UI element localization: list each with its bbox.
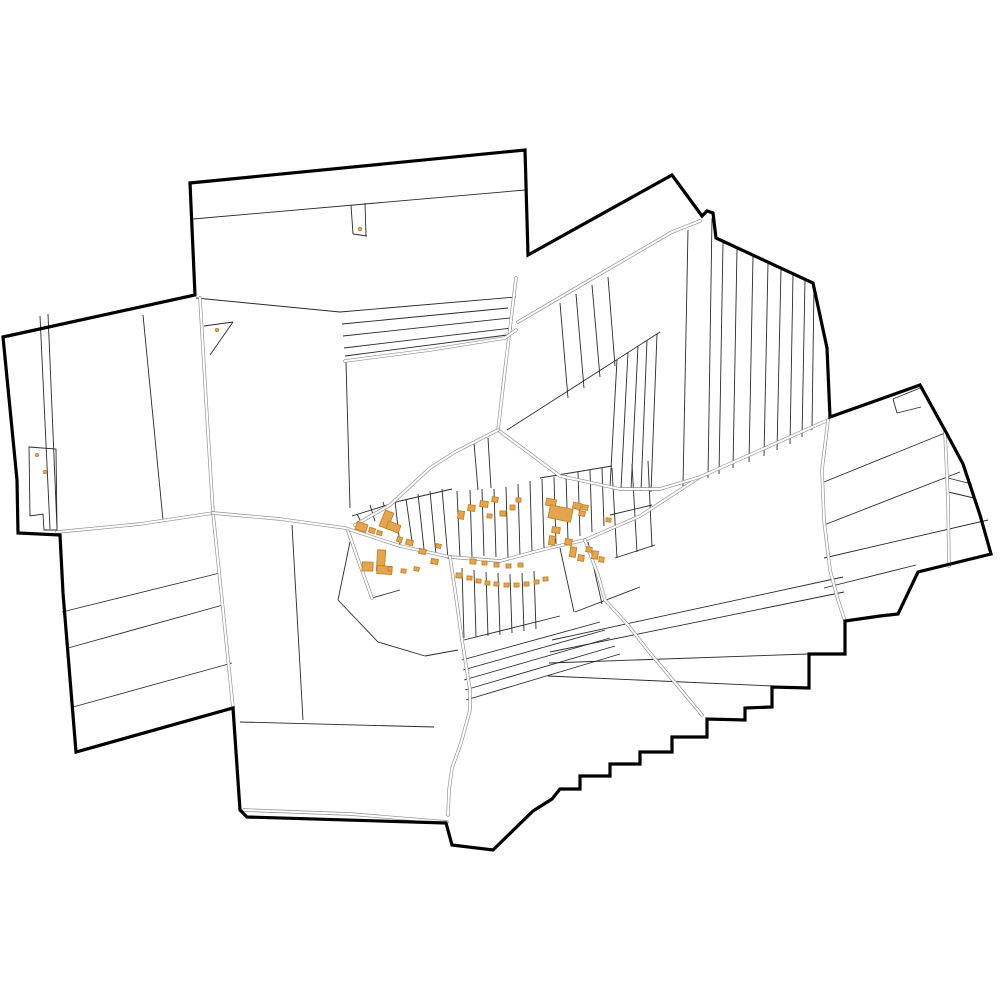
parcel-line [462,568,464,638]
road [448,557,470,815]
building [514,583,519,587]
building [548,536,555,546]
parcel-line [240,722,434,727]
building [419,548,427,554]
building [606,518,611,522]
parcel-outline [29,447,57,530]
parcel-line [733,249,737,468]
parcel-line [342,308,508,324]
parcel-line [470,490,472,557]
parcel-line [338,542,350,600]
parcel-line [575,587,640,612]
building [401,569,406,574]
parcel-line [430,491,436,555]
road [57,513,213,532]
road [585,540,702,715]
parcel-line [542,479,544,548]
parcel-line [612,468,617,558]
parcel-line [719,243,723,474]
building [543,577,548,581]
building [368,527,375,534]
parcel-line [292,525,303,720]
building [516,498,521,502]
parcel-line [196,298,340,312]
building [457,511,464,520]
parcel-line [351,205,353,234]
parcel-line [506,487,508,558]
parcel-line [464,616,560,640]
road-casing [498,420,828,489]
building [414,567,420,572]
building [388,567,392,571]
building [524,582,529,586]
building [482,561,487,565]
building [467,576,472,580]
building [582,505,589,511]
building [591,551,598,560]
building [504,583,509,587]
building [548,505,573,522]
roads-layer [57,221,949,822]
building [565,539,573,546]
cadastral-map-page [0,0,1000,1000]
parcel-line [708,218,712,478]
parcel-line [802,280,805,437]
parcel-line [372,590,400,598]
parcel-line [365,203,366,236]
parcel-line [552,577,843,640]
parcel-line [777,269,781,450]
parcel-line [464,638,610,680]
parcel-line [632,464,637,552]
cadastral-map [0,0,1000,1000]
parcel-line [463,630,605,670]
building [485,581,490,585]
parcel-line [549,654,808,663]
building-dot [43,470,47,474]
building [579,510,586,516]
parcel-line [518,484,520,556]
building-dots-layer [35,227,362,474]
parcel-line [193,190,525,219]
parcel-line [418,494,424,549]
parcel-line [548,676,772,686]
building-dot [35,453,39,457]
building [431,558,439,564]
building [500,511,506,516]
parcel-line [343,318,510,336]
road [213,513,233,708]
building [599,557,605,563]
parcel-line [466,654,620,700]
parcel-line [790,275,793,444]
building [487,514,492,518]
parcel-line [353,234,367,236]
parcel-line [590,470,592,532]
building [494,563,499,567]
parcel-line [442,489,448,559]
building [510,505,515,510]
parcel-line [824,565,916,588]
parcel-line [378,642,425,656]
building [506,564,511,568]
parcel-line [68,605,223,648]
parcel-line [462,622,600,660]
parcel-line [425,650,458,656]
parcel-line [749,256,753,462]
road [498,420,828,489]
parcel-line [204,322,233,326]
parcel-line [615,545,655,558]
building-dot [358,227,362,231]
parcel-line [608,277,615,366]
parcel-line [73,663,232,707]
parcel-line [824,472,960,525]
parcel-line [824,433,945,482]
building [586,547,593,553]
building [436,543,442,548]
building [569,547,576,558]
parcel-line [576,294,584,388]
building [468,505,476,512]
parcel-line [610,360,617,487]
parcel-line [764,263,768,456]
parcel-line [346,362,350,508]
parcel-line [530,481,532,552]
parcel-line [62,573,220,612]
parcel-line [40,316,50,529]
road [498,278,516,430]
parcel-line [812,285,814,430]
parcel-line [338,600,378,642]
parcel-line [948,492,974,498]
road [200,298,213,513]
building-dot [215,328,219,332]
building [534,580,539,584]
parcel-line [824,520,988,558]
building [396,536,402,542]
parcel-line [210,322,233,355]
parcel-line [406,499,412,541]
parcel-line [560,303,568,398]
building [552,526,561,533]
parcel-line [566,475,568,540]
building [377,530,383,535]
building [362,562,373,571]
parcel-line [143,315,163,520]
parcel-line [48,314,57,528]
building [572,502,581,510]
parcel-line [893,399,897,413]
parcel-line [683,230,688,486]
building [578,555,585,562]
building [494,582,499,586]
building [470,559,476,564]
parcel-line [592,285,600,377]
parcel-line [510,574,512,633]
parcel-line [488,438,491,488]
building [480,500,489,507]
building [476,579,481,583]
building [386,521,401,533]
parcel-line [651,334,657,492]
road-casing [585,540,702,715]
road [518,221,700,322]
building [492,497,499,503]
building [518,563,523,567]
road-casing [822,420,845,621]
road-casing [345,330,516,361]
building [456,573,462,578]
parcel-line [482,489,484,556]
parcel-line [897,407,921,413]
parcel-line [560,548,574,612]
parcel-line [621,352,628,489]
parcel-line [641,340,647,491]
parcel-line [457,491,460,558]
parcel-line [602,468,604,526]
parcel-line [474,443,478,490]
